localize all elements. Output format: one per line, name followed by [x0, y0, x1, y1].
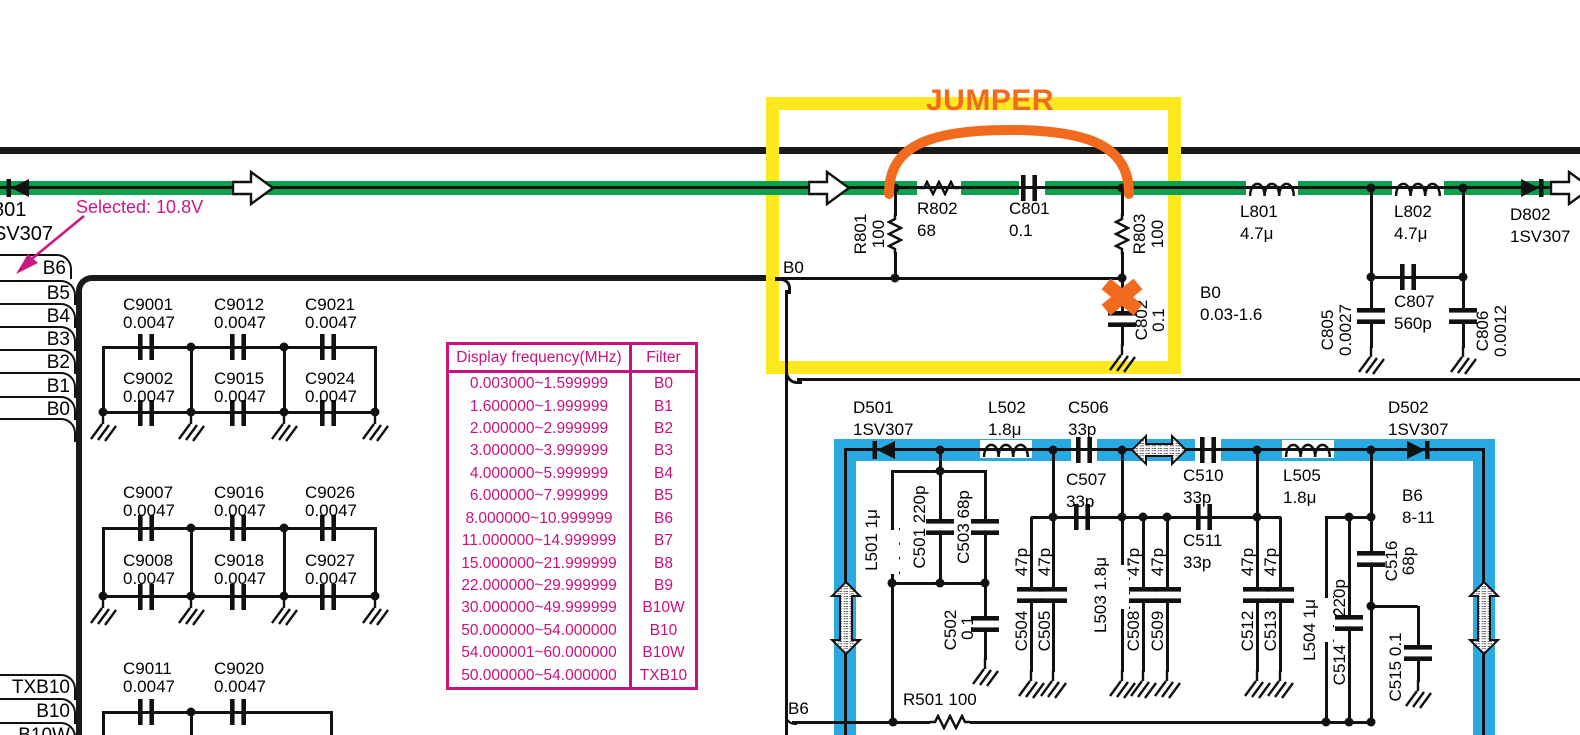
label-r802-ref: R802	[917, 199, 958, 218]
label-c513-ref: C513	[1261, 611, 1281, 652]
node	[1367, 602, 1376, 611]
ground-icon	[270, 597, 298, 627]
wire	[984, 470, 987, 519]
b6-wire	[970, 721, 1372, 724]
wire	[891, 470, 894, 530]
cell-frequency: 11.000000~14.999999	[449, 530, 632, 552]
capacitor-icon-c510	[1200, 437, 1216, 463]
label-c501: C501 220p	[910, 485, 930, 568]
label-c509-ref: C509	[1148, 611, 1168, 652]
label-c506-value: 33p	[1068, 420, 1096, 439]
label-c802-value: 0.1	[1149, 308, 1169, 332]
wire	[102, 711, 105, 735]
label-c9021-ref: C9021	[305, 295, 355, 314]
label-l802-value: 4.7μ	[1394, 224, 1427, 243]
wire	[1370, 450, 1373, 518]
ground-icon	[1153, 670, 1181, 700]
node	[1118, 446, 1127, 455]
jumper-annotation-label: JUMPER	[926, 84, 1054, 118]
node	[1367, 446, 1376, 455]
label-c504-value: 47p	[1012, 548, 1032, 576]
table-row: 6.000000~7.999999B5	[449, 485, 695, 507]
node	[936, 467, 945, 476]
label-c9015-ref: C9015	[214, 369, 264, 388]
selected-arrow-icon	[8, 210, 92, 280]
label-r802-value: 68	[917, 221, 936, 240]
ground-icon	[971, 658, 999, 688]
wire	[1371, 605, 1418, 608]
inductor-icon-l801	[1249, 180, 1295, 197]
label-l505-ref: L505	[1283, 466, 1321, 485]
label-c9021-value: 0.0047	[305, 313, 357, 332]
node	[1253, 446, 1262, 455]
cell-filter: B3	[632, 442, 695, 460]
label-l502-ref: L502	[988, 398, 1026, 417]
node	[1345, 513, 1354, 522]
label-c505-ref: C505	[1035, 611, 1055, 652]
cell-filter: B2	[632, 420, 695, 438]
label-l801-ref: L801	[1240, 202, 1278, 221]
ground-icon	[361, 597, 389, 627]
capacitor-icon-c9012	[230, 334, 246, 360]
node	[1253, 513, 1262, 522]
cell-frequency: 22.000000~29.999999	[449, 575, 632, 597]
wire	[891, 584, 894, 722]
ground-icon	[1404, 680, 1432, 710]
cell-frequency: 1.600000~1.999999	[449, 395, 632, 417]
wire	[1370, 279, 1373, 309]
label-c9018-ref: C9018	[214, 551, 264, 570]
table-row: 8.000000~10.999999B6	[449, 508, 695, 530]
diode-icon	[2, 177, 32, 199]
node	[1163, 513, 1172, 522]
wire	[1121, 450, 1124, 518]
label-c9016-ref: C9016	[214, 483, 264, 502]
ground-icon	[89, 597, 117, 627]
inductor-icon-l502	[983, 441, 1029, 458]
diode-icon-d802	[1518, 177, 1548, 199]
tab-label-b1: B1	[0, 376, 70, 398]
ground-icon	[1039, 670, 1067, 700]
cell-frequency: 4.000000~5.999999	[449, 463, 632, 485]
wire	[102, 527, 105, 597]
wire	[1256, 450, 1259, 518]
node	[936, 579, 945, 588]
ground-icon	[177, 413, 205, 443]
label-c9020-value: 0.0047	[214, 677, 266, 696]
table-row: 50.000000~54.000000B10	[449, 620, 695, 642]
label-c806-value: 0.0012	[1491, 305, 1511, 357]
cell-frequency: 2.000000~2.999999	[449, 418, 632, 440]
wire	[984, 535, 987, 584]
wire	[984, 584, 987, 616]
cell-filter: B0	[632, 375, 695, 393]
label-b6-range-name: B6	[1402, 486, 1423, 505]
wire	[330, 711, 333, 735]
table-row: 30.000000~49.999999B10W	[449, 597, 695, 619]
node	[280, 343, 289, 352]
tuning-arrow-icon	[828, 580, 864, 656]
cell-frequency: 54.000001~60.000000	[449, 642, 632, 664]
label-c511-ref: C511	[1183, 531, 1222, 550]
cell-filter: B10W	[632, 599, 695, 617]
cut-x-annotation	[1100, 279, 1144, 315]
label-c511-value: 33p	[1183, 553, 1211, 572]
capacitor-icon-c511	[1196, 504, 1212, 530]
label-c514-ref: C514	[1330, 645, 1350, 686]
wire	[1417, 661, 1420, 682]
schematic-canvas: 801 SV307 Selected: 10.8V B0 R801 100 R8…	[0, 0, 1580, 735]
label-r803-value: 100	[1148, 220, 1168, 248]
diode-icon-d501	[868, 439, 898, 461]
label-c9008-value: 0.0047	[123, 569, 175, 588]
capacitor-icon-c9001	[138, 334, 154, 360]
table-row: 3.000000~3.999999B3	[449, 440, 695, 462]
tuning-arrow-icon	[1466, 580, 1502, 656]
label-c504-ref: C504	[1012, 611, 1032, 652]
tab-label-b2: B2	[0, 352, 70, 374]
node	[1367, 184, 1376, 193]
ground-icon	[1266, 670, 1294, 700]
label-c509-value: 47p	[1148, 548, 1168, 576]
tab-label-b10: B10	[0, 701, 70, 723]
wire	[1370, 517, 1373, 551]
table-row: 54.000001~60.000000B10W	[449, 642, 695, 664]
capacitor-icon-c509	[1153, 587, 1181, 603]
label-d501-value: 1SV307	[853, 420, 914, 439]
cell-frequency: 6.000000~7.999999	[449, 485, 632, 507]
node	[1322, 718, 1331, 727]
selected-voltage-note: Selected: 10.8V	[76, 197, 203, 217]
tab-label-b0: B0	[0, 399, 70, 421]
cell-frequency: 50.000000~54.000000	[449, 664, 632, 686]
node	[1367, 513, 1376, 522]
wire	[1417, 606, 1420, 645]
capacitor-icon-c514	[1335, 615, 1363, 631]
label-c508-ref: C508	[1124, 611, 1144, 652]
tab-label-b5: B5	[0, 283, 70, 305]
tab-label-b4: B4	[0, 306, 70, 328]
table-row: 11.000000~14.999999B7	[449, 530, 695, 552]
label-c508-value: 47p	[1124, 548, 1144, 576]
ground-icon	[177, 597, 205, 627]
label-l801-value: 4.7μ	[1240, 224, 1273, 243]
capacitor-icon-c807	[1400, 264, 1416, 290]
cell-filter: B8	[632, 555, 695, 573]
lower-box-left-edge	[785, 290, 788, 735]
label-c806-ref: C806	[1473, 311, 1493, 352]
wire	[1462, 279, 1465, 309]
label-c805-value: 0.0027	[1336, 304, 1356, 356]
cell-filter: B6	[632, 510, 695, 528]
label-c9016-value: 0.0047	[214, 501, 266, 520]
cell-frequency: 50.000000~54.000000	[449, 620, 632, 642]
label-c9011-ref: C9011	[123, 659, 172, 678]
table-row: 15.000000~21.999999B8	[449, 552, 695, 574]
filter-table-header-frequency: Display frequency(MHz)	[449, 345, 632, 370]
label-c9002-ref: C9002	[123, 369, 173, 388]
label-c516-value: 68p	[1399, 547, 1419, 575]
label-l504: L504 1μ	[1300, 599, 1320, 661]
filter-table-header-row: Display frequency(MHz) Filter	[449, 345, 695, 373]
label-c9011-value: 0.0047	[123, 677, 175, 696]
node	[936, 446, 945, 455]
capacitor-icon-c9020	[230, 699, 246, 725]
label-c515: C515 0.1	[1386, 633, 1406, 702]
node	[1459, 273, 1468, 282]
label-l501: L501 1μ	[862, 509, 882, 571]
cell-filter: B7	[632, 532, 695, 550]
label-c9027-value: 0.0047	[305, 569, 357, 588]
b0-wire	[775, 277, 1124, 280]
node	[888, 579, 897, 588]
label-c9012-value: 0.0047	[214, 313, 266, 332]
cell-filter: B10W	[632, 644, 695, 662]
cell-frequency: 3.000000~3.999999	[449, 440, 632, 462]
capacitor-icon-c9011	[138, 699, 154, 725]
inductor-icon-l505	[1285, 441, 1331, 458]
section-divider-line	[797, 378, 1580, 381]
capacitor-icon-c506	[1076, 437, 1092, 463]
wire	[939, 535, 942, 584]
label-l802-ref: L802	[1394, 202, 1432, 221]
table-row: 4.000000~5.999999B4	[449, 463, 695, 485]
label-c506-ref: C506	[1068, 398, 1109, 417]
cell-frequency: 30.000000~49.999999	[449, 597, 632, 619]
resistor-icon-r803	[1114, 214, 1130, 254]
label-c9026-value: 0.0047	[305, 501, 357, 520]
left-box-top-edge	[94, 275, 775, 281]
node	[889, 718, 898, 727]
capacitor-icon-c501	[926, 519, 954, 535]
node	[1139, 513, 1148, 522]
label-l503: L503 1.8μ	[1091, 557, 1111, 633]
label-b6-wire: B6	[788, 699, 809, 718]
label-d802-ref: D802	[1510, 205, 1551, 224]
label-c9007-ref: C9007	[123, 483, 173, 502]
node	[1118, 513, 1127, 522]
capacitor-icon-c513	[1266, 587, 1294, 603]
label-c9020-ref: C9020	[214, 659, 264, 678]
node	[1367, 718, 1376, 727]
wire	[1370, 190, 1373, 278]
ground-icon	[1357, 346, 1385, 376]
label-c9008-ref: C9008	[123, 551, 173, 570]
label-c512-ref: C512	[1238, 611, 1258, 652]
node	[1049, 513, 1058, 522]
table-row: 22.000000~29.999999B9	[449, 575, 695, 597]
diode-icon-d502	[1404, 439, 1434, 461]
wire	[939, 470, 942, 519]
wire	[1325, 517, 1328, 598]
left-box-left-edge	[76, 290, 82, 735]
node	[1367, 273, 1376, 282]
label-d502-ref: D502	[1388, 398, 1429, 417]
label-c9027-ref: C9027	[305, 551, 355, 570]
wire	[1462, 324, 1465, 348]
wire	[190, 346, 193, 413]
ground-icon	[89, 413, 117, 443]
wire	[374, 527, 377, 597]
label-c9026-ref: C9026	[305, 483, 355, 502]
node	[981, 579, 990, 588]
capacitor-icon-c505	[1039, 587, 1067, 603]
label-c510-ref: C510	[1183, 466, 1224, 485]
table-row: 2.000000~2.999999B2	[449, 418, 695, 440]
cell-frequency: 0.003000~1.599999	[449, 373, 632, 395]
jumper-arc-annotation	[870, 120, 1150, 200]
node	[1345, 718, 1354, 727]
wire	[102, 346, 105, 413]
label-d501-ref: D501	[853, 398, 894, 417]
signal-arrow-icon	[1550, 169, 1580, 207]
label-d802-value: 1SV307	[1510, 227, 1571, 246]
label-c502-value: 0.1	[958, 616, 978, 640]
label-c513-value: 47p	[1261, 548, 1281, 576]
label-b0-wire: B0	[783, 258, 804, 277]
cell-filter: B10	[632, 622, 695, 640]
label-b0-range-name: B0	[1200, 283, 1221, 302]
cell-filter: B4	[632, 465, 695, 483]
label-c9001-ref: C9001	[123, 295, 173, 314]
label-r801-ref: R801	[851, 214, 871, 255]
cell-filter: B9	[632, 577, 695, 595]
label-c9024-ref: C9024	[305, 369, 355, 388]
node	[187, 708, 196, 717]
label-c9001-value: 0.0047	[123, 313, 175, 332]
label-c503: C503 68p	[954, 490, 974, 564]
label-r803-ref: R803	[1130, 214, 1150, 255]
label-c801-value: 0.1	[1009, 221, 1033, 240]
signal-arrow-icon	[808, 169, 850, 207]
label-r501: R501 100	[903, 690, 977, 709]
capacitor-icon-c515	[1404, 645, 1432, 661]
capacitor-icon-c9021	[320, 334, 336, 360]
label-c505-value: 47p	[1035, 548, 1055, 576]
label-c507-ref: C507	[1066, 470, 1107, 489]
capacitor-icon-c503	[971, 519, 999, 535]
wire	[102, 711, 332, 714]
wire	[1370, 567, 1373, 722]
node	[1459, 184, 1468, 193]
node	[1049, 446, 1058, 455]
label-c9015-value: 0.0047	[214, 387, 266, 406]
filter-table: Display frequency(MHz) Filter 0.003000~1…	[446, 342, 698, 690]
inductor-icon-l501	[883, 528, 900, 574]
label-c9002-value: 0.0047	[123, 387, 175, 406]
label-c507-value: 33p	[1066, 492, 1094, 511]
capacitor-icon-c516	[1357, 551, 1385, 567]
table-row: 50.000000~54.000000TXB10	[449, 664, 695, 686]
tab-label-b3: B3	[0, 329, 70, 351]
label-d502-value: 1SV307	[1388, 420, 1449, 439]
node	[280, 524, 289, 533]
cell-filter: TXB10	[632, 667, 695, 685]
label-l502-value: 1.8μ	[988, 420, 1021, 439]
wire	[283, 527, 286, 597]
wire	[1462, 190, 1465, 278]
label-c9024-value: 0.0047	[305, 387, 357, 406]
cell-frequency: 15.000000~21.999999	[449, 552, 632, 574]
wire	[1031, 516, 1281, 519]
tuning-arrow-icon	[1130, 432, 1188, 468]
label-c9018-value: 0.0047	[214, 569, 266, 588]
tab-below-b0	[0, 418, 76, 442]
label-c805-ref: C805	[1318, 310, 1338, 351]
label-c9007-value: 0.0047	[123, 501, 175, 520]
wire	[1325, 642, 1328, 722]
wire	[283, 346, 286, 413]
label-c801-ref: C801	[1009, 199, 1050, 218]
wire	[984, 632, 987, 660]
node	[187, 343, 196, 352]
filter-table-header-filter: Filter	[632, 349, 695, 367]
b6-wire	[792, 721, 930, 724]
label-r801-value: 100	[869, 220, 889, 248]
capacitor-icon-c805	[1357, 308, 1385, 324]
wire	[1371, 276, 1463, 279]
resistor-icon-r501	[930, 714, 970, 730]
label-l505-value: 1.8μ	[1283, 488, 1316, 507]
ground-icon	[1108, 344, 1136, 374]
cell-frequency: 8.000000~10.999999	[449, 508, 632, 530]
node	[891, 274, 900, 283]
label-b0-range-value: 0.03-1.6	[1200, 305, 1262, 324]
inductor-icon-l802	[1395, 180, 1441, 197]
wire	[374, 346, 377, 413]
label-c807-value: 560p	[1394, 314, 1432, 333]
wire	[1052, 450, 1055, 518]
signal-arrow-icon	[232, 169, 274, 207]
tab-label-txb10: TXB10	[0, 677, 70, 699]
label-c807-ref: C807	[1394, 292, 1435, 311]
label-c514-value: 220p	[1330, 579, 1350, 617]
wire	[190, 527, 193, 597]
ground-icon	[361, 413, 389, 443]
label-c510-value: 33p	[1183, 488, 1211, 507]
table-row: 0.003000~1.599999B0	[449, 373, 695, 395]
table-row: 1.600000~1.999999B1	[449, 395, 695, 417]
resistor-icon-r801	[887, 214, 903, 254]
label-c9012-ref: C9012	[214, 295, 264, 314]
ground-icon	[270, 413, 298, 443]
label-c512-value: 47p	[1238, 548, 1258, 576]
wire	[1370, 324, 1373, 348]
cell-filter: B1	[632, 398, 695, 416]
label-b6-range-value: 8-11	[1402, 508, 1435, 527]
cell-filter: B5	[632, 487, 695, 505]
node	[187, 524, 196, 533]
tab-label-b10w: B10W	[0, 725, 70, 735]
